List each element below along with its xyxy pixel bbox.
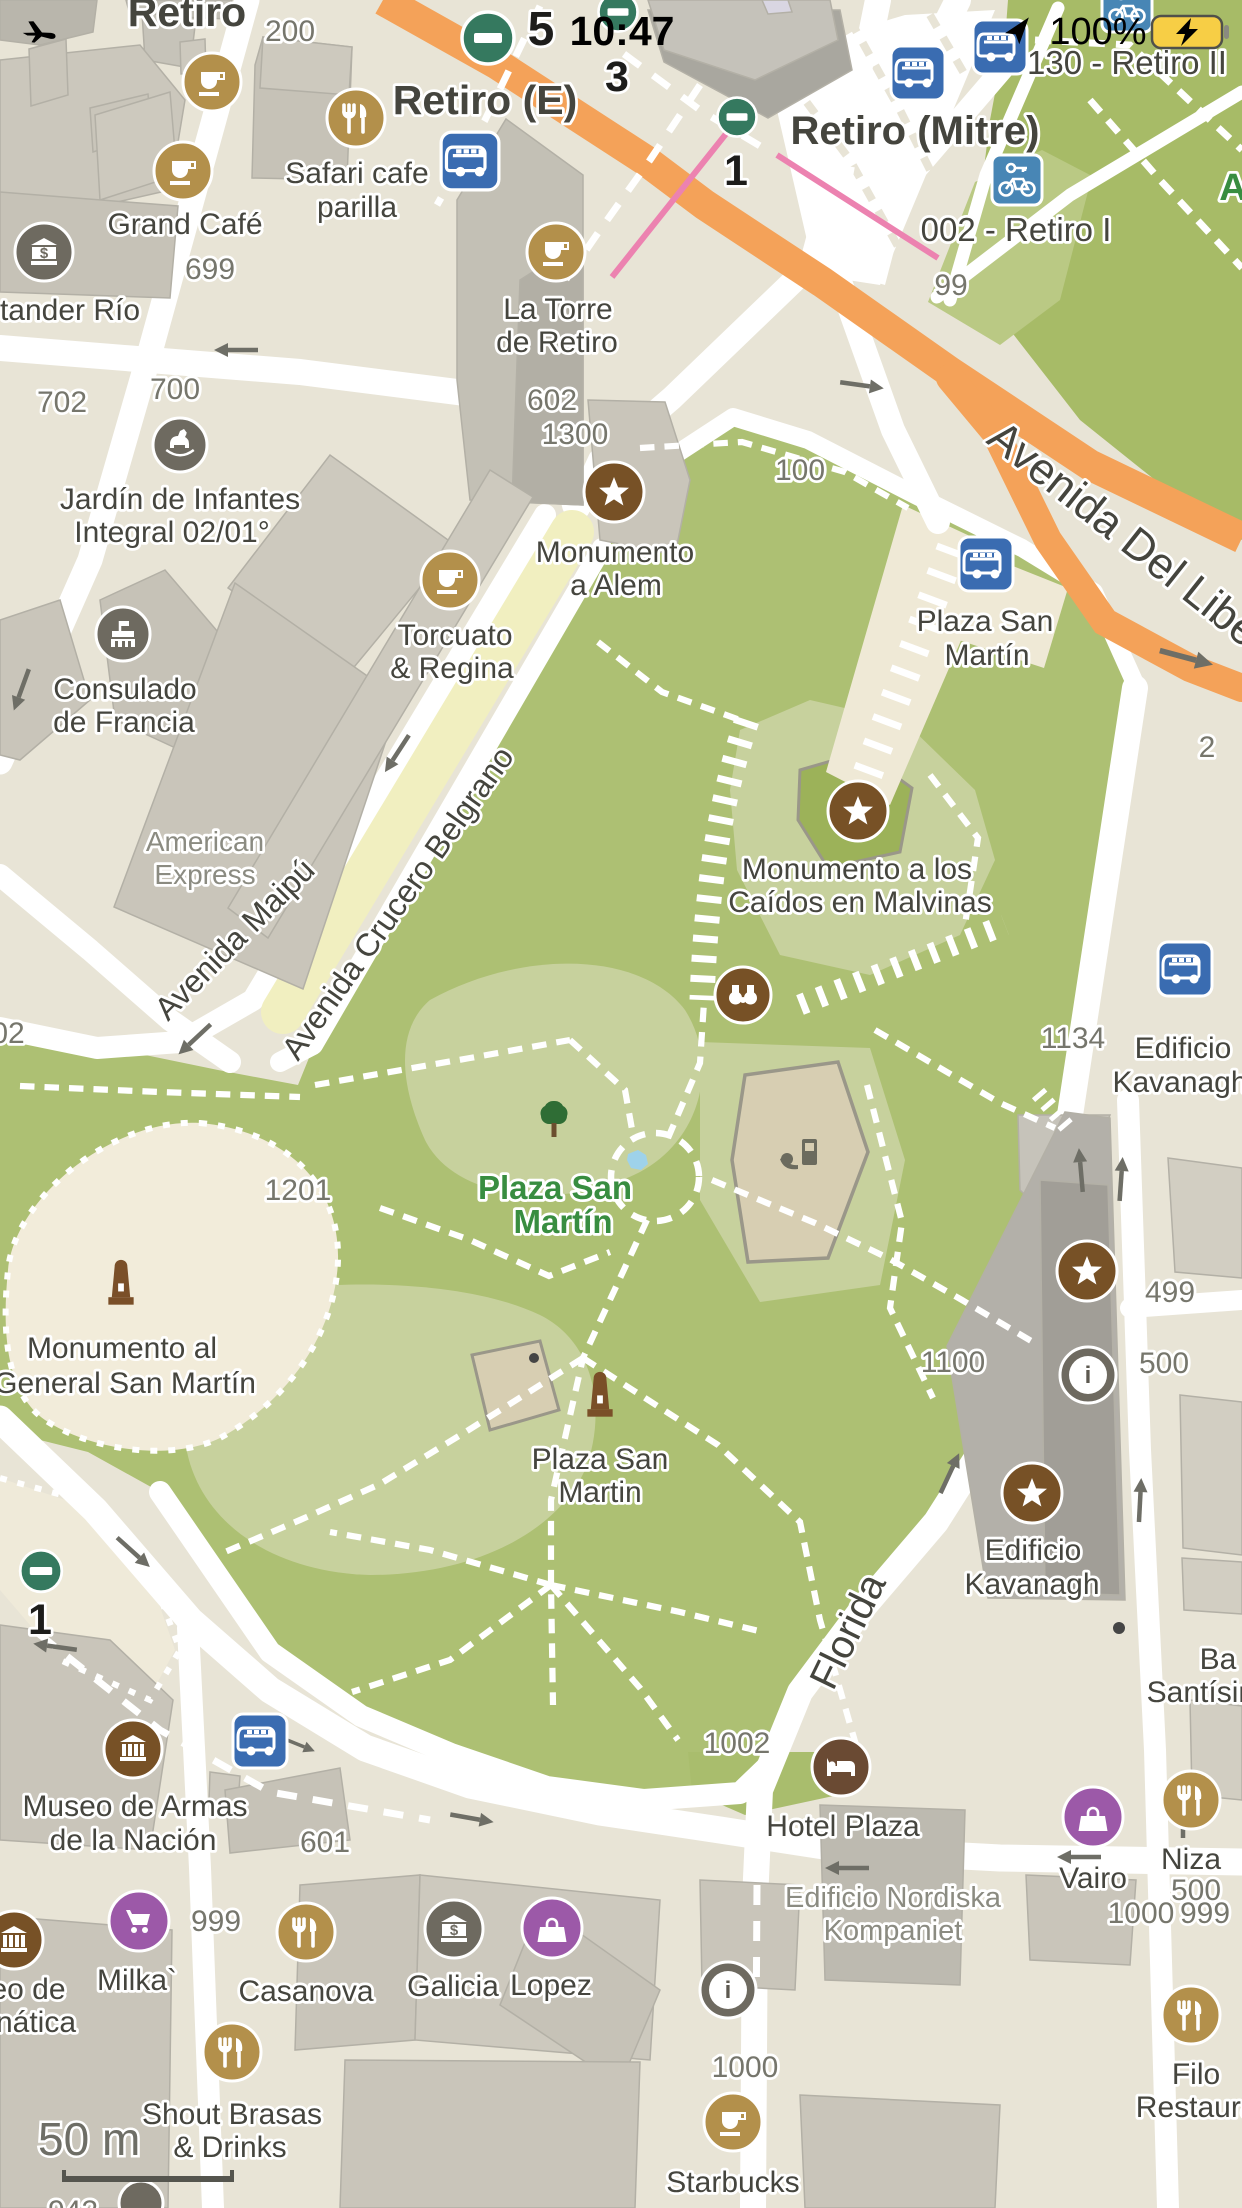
svg-text:Jardín de Infantes: Jardín de Infantes <box>60 483 300 516</box>
svg-text:Lopez: Lopez <box>510 1969 592 2002</box>
svg-text:Monumento a los: Monumento a los <box>742 853 972 886</box>
svg-text:Retiro (E): Retiro (E) <box>393 77 578 123</box>
svg-text:Galicia: Galicia <box>407 1970 499 2003</box>
svg-text:de Retiro: de Retiro <box>496 326 618 359</box>
svg-text:Vairo: Vairo <box>1059 1862 1127 1895</box>
svg-text:702: 702 <box>37 386 87 419</box>
svg-text:A: A <box>1219 167 1242 209</box>
svg-text:Safari cafe: Safari cafe <box>285 157 428 190</box>
svg-text:Martín: Martín <box>514 1203 613 1240</box>
svg-text:Consulado: Consulado <box>53 673 196 706</box>
svg-text:Monumento: Monumento <box>536 536 694 569</box>
svg-text:Casanova: Casanova <box>238 1975 373 2008</box>
svg-text:parilla: parilla <box>317 191 397 224</box>
svg-text:General San Martín: General San Martín <box>0 1367 256 1400</box>
svg-text:Restauran: Restauran <box>1136 2091 1242 2124</box>
svg-text:Edificio: Edificio <box>1135 1032 1232 1065</box>
svg-text:1: 1 <box>28 1596 52 1644</box>
svg-text:Hotel Plaza: Hotel Plaza <box>766 1810 920 1843</box>
svg-text:Grand Café: Grand Café <box>107 208 262 241</box>
svg-text:1300: 1300 <box>542 418 609 451</box>
svg-text:3: 3 <box>605 53 629 101</box>
svg-text:50 m: 50 m <box>38 2113 140 2165</box>
svg-text:Niza: Niza <box>1161 1843 1221 1876</box>
svg-text:Retiro (Mitre): Retiro (Mitre) <box>791 109 1040 153</box>
svg-text:02: 02 <box>0 1017 25 1050</box>
svg-text:602: 602 <box>527 384 577 417</box>
svg-text:Kavanagh: Kavanagh <box>964 1568 1099 1601</box>
svg-text:1000: 1000 <box>1108 1897 1175 1930</box>
svg-text:1134: 1134 <box>1041 1022 1106 1055</box>
svg-text:700: 700 <box>150 373 200 406</box>
svg-text:de Francia: de Francia <box>53 706 195 739</box>
svg-text:100%: 100% <box>1049 11 1146 53</box>
svg-text:eo de: eo de <box>0 1973 66 2006</box>
svg-text:Museo de Armas: Museo de Armas <box>22 1790 247 1823</box>
svg-text:942: 942 <box>48 2195 98 2208</box>
svg-text:5: 5 <box>528 3 555 56</box>
svg-text:Integral 02/01°: Integral 02/01° <box>74 516 269 549</box>
svg-text:100: 100 <box>775 454 825 487</box>
svg-text:Torcuato: Torcuato <box>397 619 512 652</box>
svg-text:1000: 1000 <box>712 2051 779 2084</box>
svg-text:Martín: Martín <box>944 639 1029 672</box>
svg-text:Kompaniet: Kompaniet <box>824 1915 963 1947</box>
svg-text:La Torre: La Torre <box>503 293 613 326</box>
svg-text:Shout Brasas: Shout Brasas <box>142 2098 322 2131</box>
svg-text:a Alem: a Alem <box>570 569 662 602</box>
svg-text:Plaza San: Plaza San <box>478 1169 632 1206</box>
svg-text:Edificio: Edificio <box>985 1534 1082 1567</box>
svg-text:American: American <box>146 826 264 857</box>
svg-text:Plaza San: Plaza San <box>532 1443 669 1476</box>
svg-text:699: 699 <box>185 253 235 286</box>
svg-text:200: 200 <box>265 15 315 48</box>
svg-text:de la Nación: de la Nación <box>50 1824 217 1857</box>
svg-text:Martin: Martin <box>558 1476 641 1509</box>
svg-text:Plaza San: Plaza San <box>917 605 1054 638</box>
svg-text:Filo: Filo <box>1172 2058 1220 2091</box>
svg-text:2: 2 <box>1199 731 1216 764</box>
svg-text:500: 500 <box>1139 1347 1189 1380</box>
svg-text:1100: 1100 <box>921 1346 986 1379</box>
svg-text:002 - Retiro I: 002 - Retiro I <box>921 211 1112 248</box>
svg-text:999: 999 <box>191 1905 241 1938</box>
svg-text:Milka`: Milka` <box>97 1964 177 1997</box>
svg-text:500: 500 <box>1171 1874 1221 1907</box>
svg-text:601: 601 <box>300 1826 350 1859</box>
svg-text:Monumento al: Monumento al <box>27 1332 217 1365</box>
svg-text:Starbucks: Starbucks <box>666 2166 799 2199</box>
svg-text:1201: 1201 <box>265 1174 332 1207</box>
svg-text:Kavanagh: Kavanagh <box>1112 1066 1242 1099</box>
svg-text:Retiro: Retiro <box>128 0 246 35</box>
svg-text:& Drinks: & Drinks <box>173 2131 286 2164</box>
svg-text:10:47: 10:47 <box>570 8 675 54</box>
svg-text:Express: Express <box>154 859 255 890</box>
svg-text:Caídos en Malvinas: Caídos en Malvinas <box>728 886 991 919</box>
svg-text:1002: 1002 <box>704 1727 771 1760</box>
svg-text:1: 1 <box>724 147 748 195</box>
svg-text:& Regina: & Regina <box>390 652 514 685</box>
svg-text:Edificio Nordiska: Edificio Nordiska <box>785 1882 1002 1914</box>
svg-text:tander Río: tander Río <box>0 294 140 327</box>
svg-text:Santísim: Santísim <box>1147 1676 1242 1709</box>
svg-text:499: 499 <box>1145 1276 1195 1309</box>
svg-text:Ba: Ba <box>1200 1643 1237 1676</box>
svg-text:99: 99 <box>934 269 967 302</box>
svg-text:nática: nática <box>0 2006 76 2039</box>
